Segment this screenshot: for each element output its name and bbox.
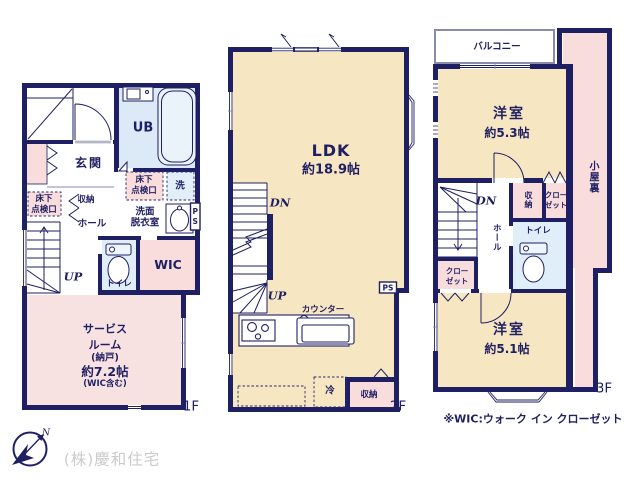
storage-room-lines bbox=[27, 88, 73, 140]
closet-label: クロー bbox=[545, 191, 568, 199]
balcony-label: バルコニー bbox=[473, 42, 520, 52]
room-label-service: サービス bbox=[83, 324, 127, 335]
floor-label-1f: 1F bbox=[183, 400, 199, 414]
kitchen-icons bbox=[239, 315, 354, 346]
room-label-wic: WIC bbox=[154, 259, 182, 272]
casement-window-flag bbox=[281, 34, 291, 47]
floor-label-3f: 3F bbox=[596, 382, 612, 396]
closet-label: ゼット bbox=[446, 277, 469, 285]
inspection-hatch-label: 点検口 bbox=[131, 187, 157, 196]
storage-label-1f: 収納 bbox=[77, 196, 94, 205]
toilet-1f-icon bbox=[106, 244, 131, 284]
room-size-service: 約7.2帖 bbox=[81, 366, 128, 379]
storage-label-2f: 収納 bbox=[360, 391, 377, 400]
counter-label: カウンター bbox=[302, 306, 345, 315]
room-label-ub: UB bbox=[133, 122, 153, 135]
hall-label-3f: ホール bbox=[492, 224, 501, 253]
room-size-ldk: 約18.9帖 bbox=[302, 164, 360, 177]
entrance-closet-doors bbox=[47, 146, 57, 175]
room-size-bedroom1: 約5.3帖 bbox=[484, 127, 529, 139]
stairs-up-label-2f: UP bbox=[268, 290, 287, 302]
floorplan-page: UB 床下 点検口 洗 洗面 脱衣室 PS 玄関 床下 点検口 収納 ホール W… bbox=[0, 0, 640, 480]
bay-window bbox=[409, 95, 414, 150]
company-name: (株)慶和住宅 bbox=[64, 452, 161, 468]
room-label-ldk: LDK bbox=[312, 143, 351, 159]
closet-label: クロー bbox=[446, 267, 469, 275]
room-label-service-sub: (納戸) bbox=[91, 353, 119, 363]
floorplan-drawing bbox=[0, 0, 640, 480]
entrance-door-arc bbox=[75, 104, 111, 140]
stairs-1f-icon bbox=[27, 222, 60, 293]
toilet-label-3f: トイレ bbox=[525, 227, 551, 236]
hall-label-1f: ホール bbox=[78, 219, 107, 229]
storage-label-3f: 収納 bbox=[524, 191, 532, 209]
pipe-space-label-2f: PS bbox=[383, 284, 394, 292]
washroom-label: 脱衣室 bbox=[131, 218, 160, 228]
stairs-3f-icon bbox=[438, 183, 477, 257]
inspection-hatch-label: 床下 bbox=[135, 176, 152, 185]
attic-label: 小屋裏 bbox=[587, 161, 597, 194]
stairs-down-label-2f: DN bbox=[270, 197, 290, 209]
stairs-down-arrow bbox=[454, 198, 462, 250]
room-label-bedroom2: 洋室 bbox=[493, 323, 525, 337]
floor-2-plan bbox=[228, 34, 414, 412]
room-label-entrance: 玄関 bbox=[75, 157, 103, 169]
pipe-space-label: PS bbox=[191, 207, 199, 227]
wic-note: ※WIC:ウォーク イン クローゼット bbox=[443, 414, 622, 425]
toilet-label-1f: トイレ bbox=[106, 280, 132, 289]
room-size-bedroom2: 約5.1帖 bbox=[484, 343, 529, 355]
room-note-service: (WIC含む) bbox=[83, 380, 127, 389]
inspection-hatch-label: 床下 bbox=[35, 195, 52, 204]
stairs-up-label-1f: UP bbox=[64, 271, 83, 283]
stairs-down-label-3f: DN bbox=[476, 195, 496, 207]
fridge-label: 冷 bbox=[325, 386, 335, 396]
attic-area bbox=[575, 268, 593, 387]
room-label-service: ルーム bbox=[89, 340, 122, 351]
casement-window-flag bbox=[329, 34, 339, 47]
floor-label-2f: 2F bbox=[390, 400, 406, 414]
laundry-label: 洗 bbox=[175, 181, 185, 191]
washroom-label: 洗面 bbox=[135, 207, 154, 217]
room-label-bedroom1: 洋室 bbox=[493, 107, 525, 121]
inspection-hatch-label: 点検口 bbox=[31, 206, 57, 215]
bay-window-bottom bbox=[488, 392, 547, 402]
closet-label: ゼット bbox=[545, 201, 568, 209]
compass-north-label: N bbox=[42, 428, 50, 438]
